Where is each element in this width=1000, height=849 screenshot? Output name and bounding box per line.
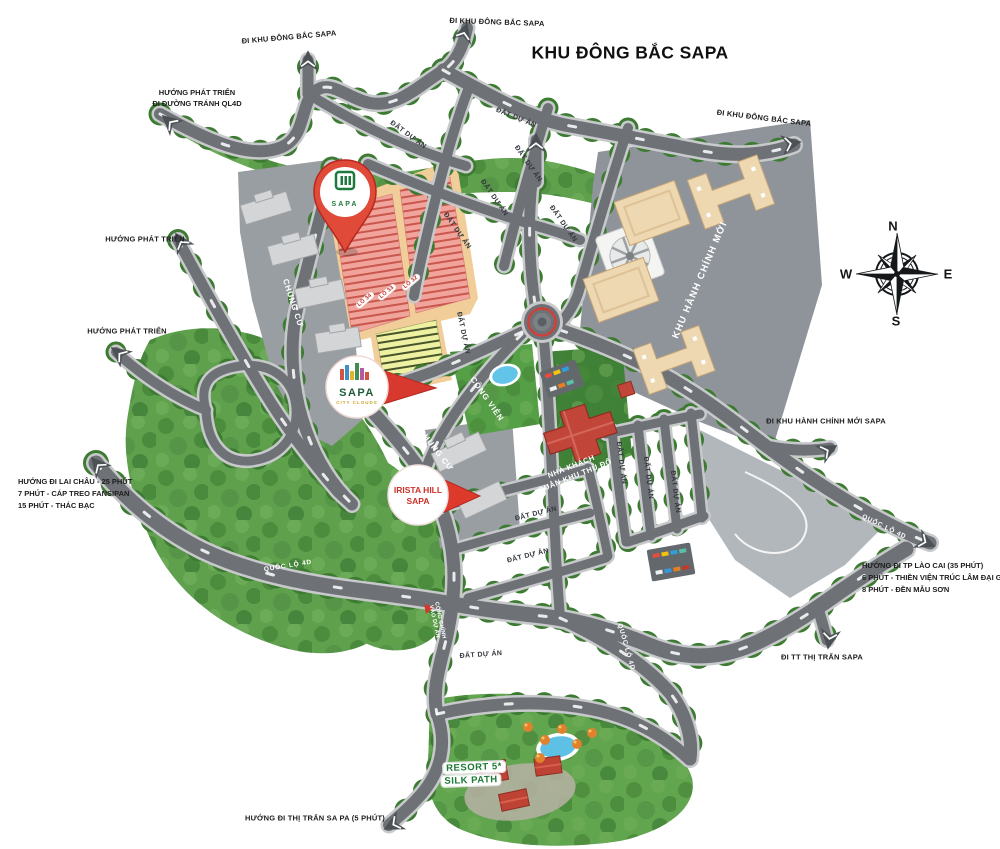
road-label-town-exit: ĐI TT THỊ TRẤN SAPA [781,653,863,662]
label-resort-line2: SILK PATH [441,769,501,789]
pin-city-clouds-sub: CITY CLOUDS [336,400,377,405]
road-label-dev-bypass: HƯỚNG PHÁT TRIỂN ĐI ĐƯỜNG TRÁNH QL4D [152,87,241,109]
pin-irista-line1: IRISTA HILL [394,485,442,495]
compass-e: E [944,267,953,282]
pin-city-clouds-name: SAPA [339,387,375,399]
lao-cai-line2: 6 PHÚT - THIỀN VIỆN TRÚC LÂM ĐẠI GIÁC [862,572,1000,584]
lao-cai-line3: 8 PHÚT - ĐỀN MẪU SƠN [862,584,1000,596]
roundabout [521,301,563,343]
road-label-town-south: HƯỚNG ĐI THỊ TRẤN SA PA (5 PHÚT) [245,814,385,823]
compass-n: N [888,219,897,234]
pin-sapa-logo-label: SAPA [332,201,359,208]
compass-s: S [892,314,901,329]
road-label-dev2: HƯỚNG PHÁT TRIỂN [105,235,185,244]
lao-cai-line1: HƯỚNG ĐI TP LÀO CAI (35 PHÚT) [862,560,1000,572]
lai-chau-line1: HƯỚNG ĐI LAI CHÂU - 25 PHÚT [18,476,132,488]
road-label-admin-exit: ĐI KHU HÀNH CHÍNH MỚI SAPA [766,417,886,426]
masterplan-map: SAPA SAPA CITY CLOUDS IRISTA HILL SAPA K… [0,0,1000,849]
resort-pill-2: SILK PATH [441,774,501,787]
road-label-lai-chau: HƯỚNG ĐI LAI CHÂU - 25 PHÚT 7 PHÚT - CÁP… [18,476,132,512]
page-title: KHU ĐÔNG BẮC SAPA [531,43,728,64]
road-label-lao-cai: HƯỚNG ĐI TP LÀO CAI (35 PHÚT) 6 PHÚT - T… [862,560,1000,596]
road-label-dev3: HƯỚNG PHÁT TRIỂN [87,327,167,336]
lai-chau-line3: 15 PHÚT - THÁC BẠC [18,500,132,512]
pin-irista-line2: SAPA [407,496,430,506]
compass-rose-icon [856,233,938,315]
compass-w: W [840,267,852,282]
lai-chau-line2: 7 PHÚT - CÁP TREO FANSIPAN [18,488,132,500]
dev-line2: ĐI ĐƯỜNG TRÁNH QL4D [152,98,241,109]
dev-line1: HƯỚNG PHÁT TRIỂN [152,87,241,98]
